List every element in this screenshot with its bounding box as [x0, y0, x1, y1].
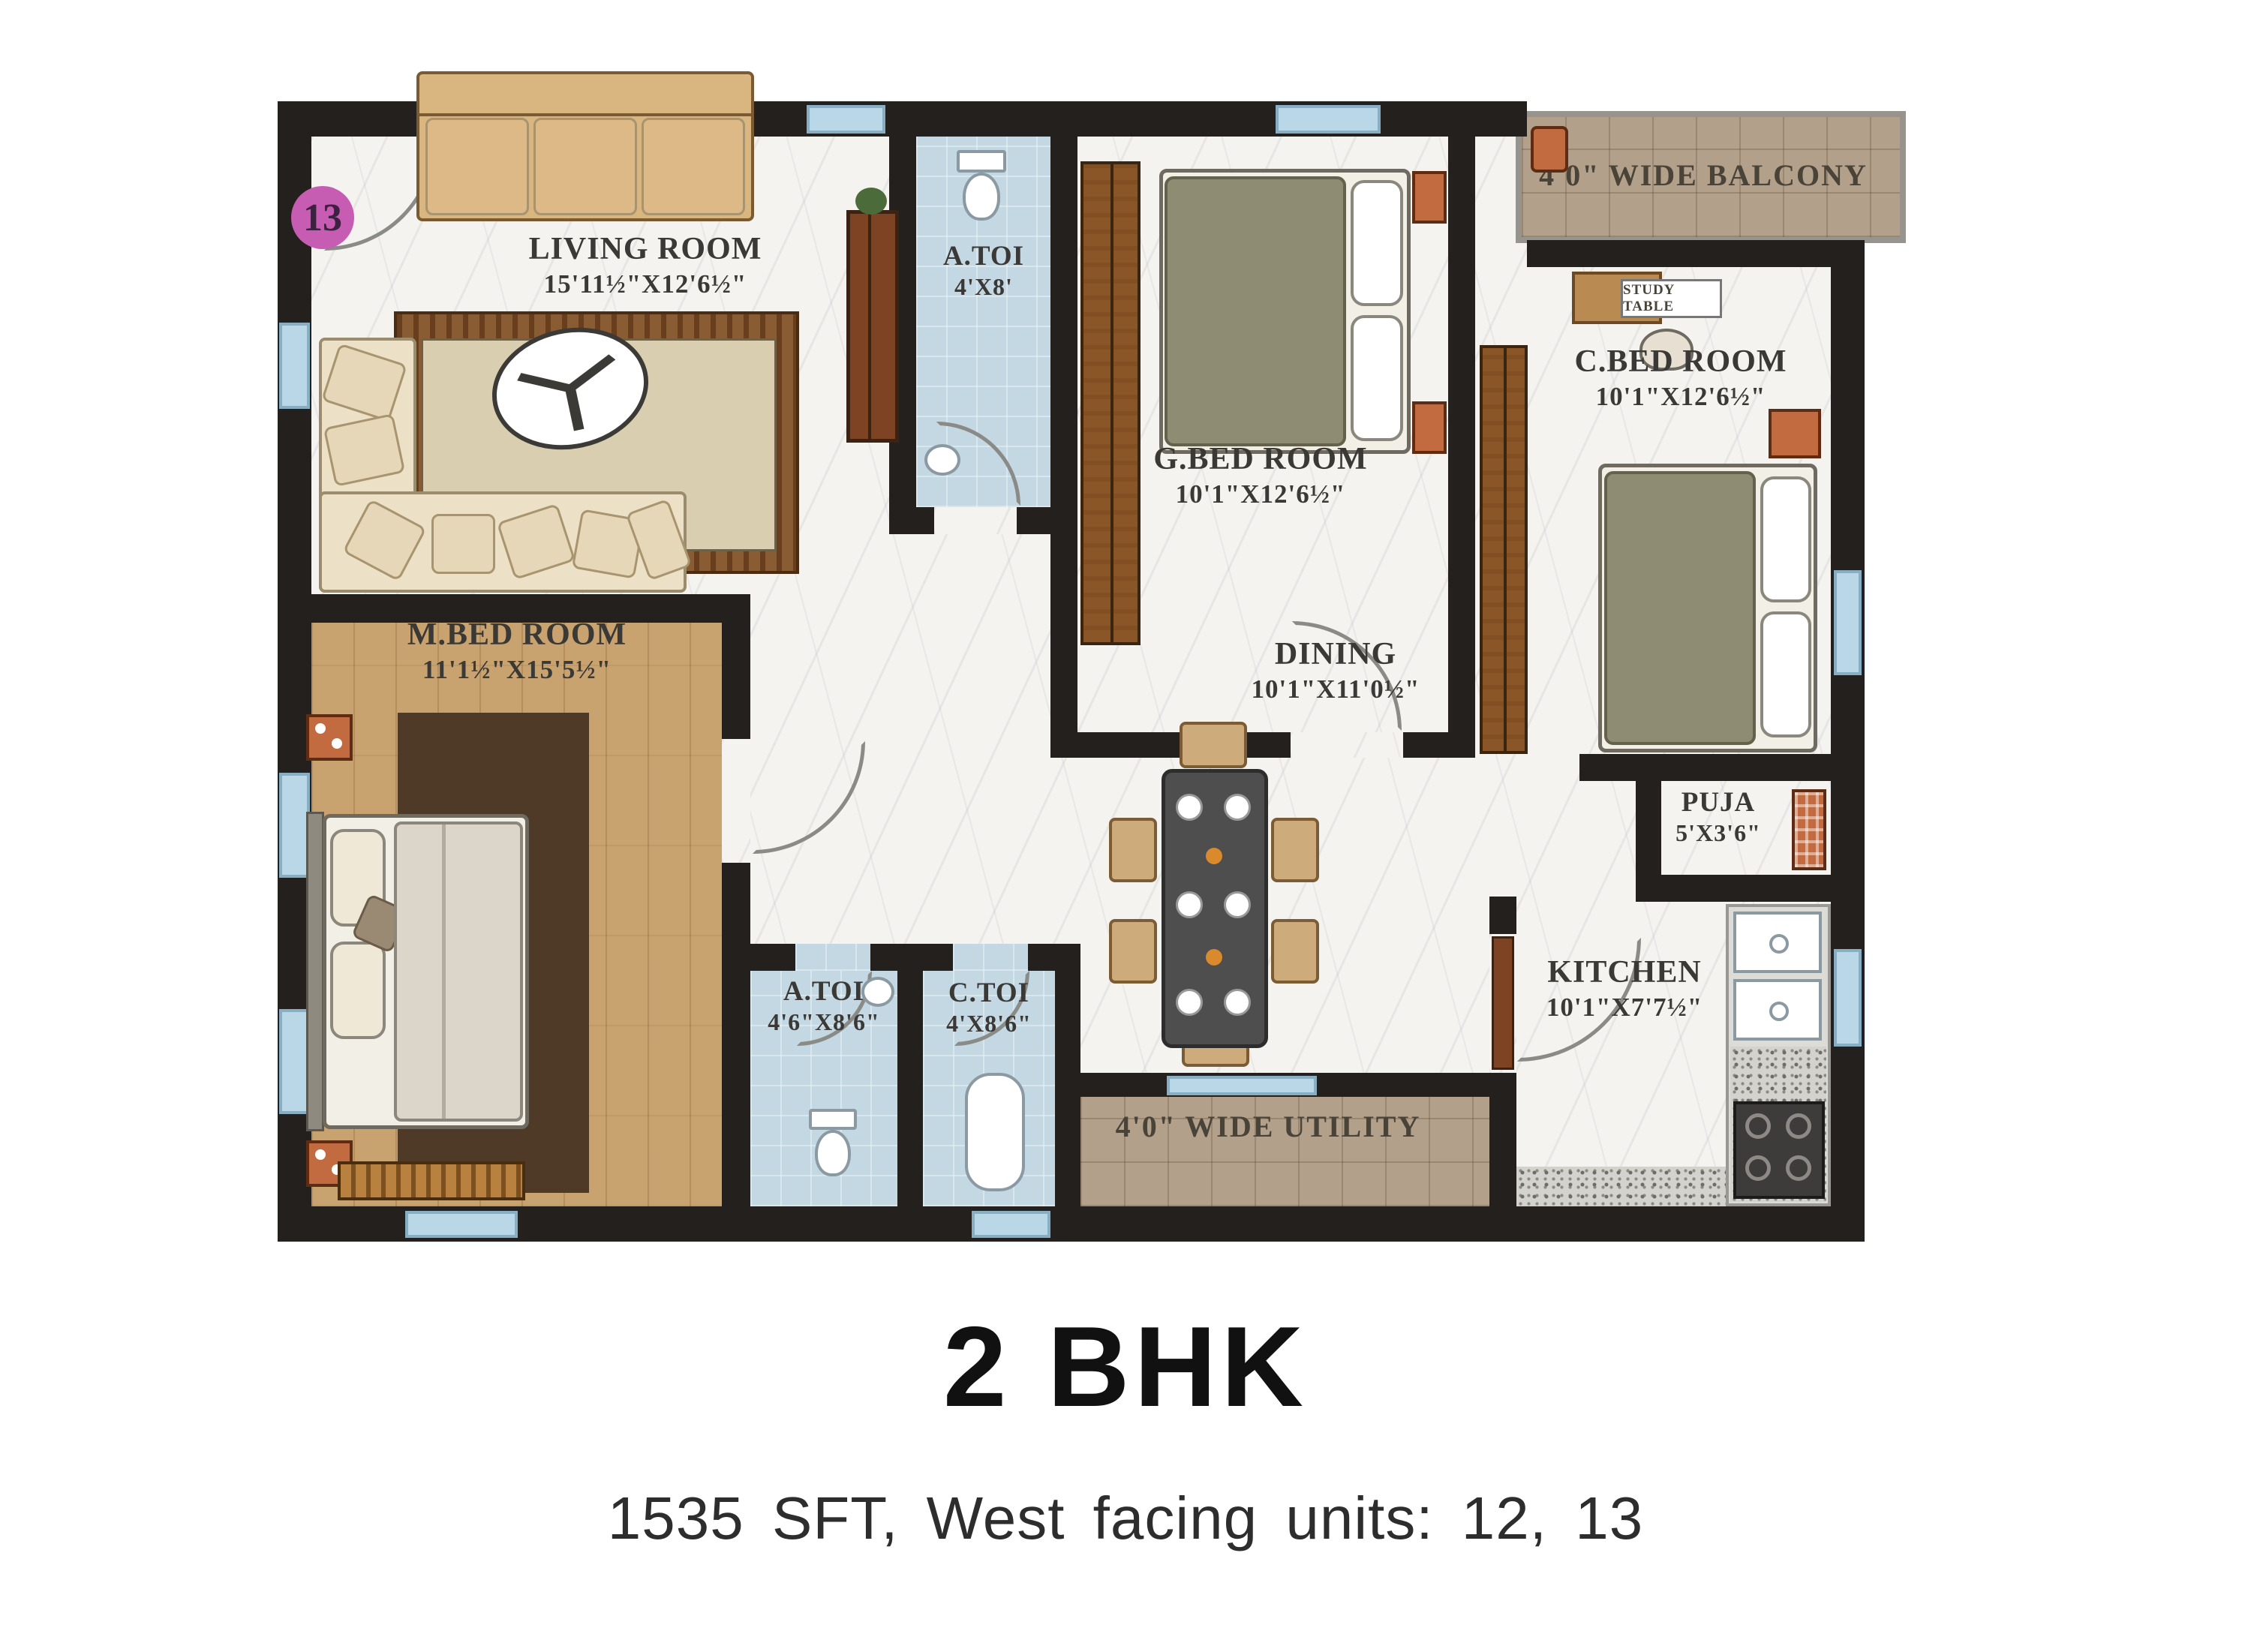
sofa-pillow	[431, 514, 495, 574]
gbed-label: G.BED ROOM 10'1"X12'6½"	[1065, 441, 1456, 509]
cbed-label: C.BED ROOM 10'1"X12'6½"	[1531, 344, 1831, 412]
gbed-pillow	[1351, 315, 1403, 441]
sofa-cushion	[425, 118, 529, 215]
plan-title: 2 BHK	[0, 1302, 2251, 1433]
dining-table	[1162, 769, 1268, 1048]
mbed-duvet	[394, 821, 523, 1122]
sink-icon	[861, 977, 894, 1007]
dining-label: DINING 10'1"X11'0½"	[1186, 636, 1486, 704]
balcony-planter	[1531, 126, 1568, 173]
cbed-nightstand	[1769, 409, 1821, 458]
study-table-label: STUDY TABLE	[1621, 279, 1722, 318]
atoi-top-label: A.TOI 4'X8'	[916, 240, 1051, 301]
gbed-nightstand	[1412, 171, 1447, 224]
plan-subtitle: 1535 SFT, West facing units: 12, 13	[0, 1484, 2251, 1553]
dining-chair	[1109, 818, 1157, 882]
atoi-bottom-door-gap	[795, 944, 870, 971]
window-left-2	[279, 773, 310, 878]
floor-plan-page: 4'0" WIDE BALCONY	[0, 0, 2251, 1652]
wall-mbed-right	[722, 594, 750, 1242]
living-top-sofa	[416, 71, 754, 221]
mbed-label: M.BED ROOM 11'1½"X15'5½"	[311, 617, 723, 685]
wall-gbed-bottom	[1050, 732, 1475, 758]
toilet-icon	[957, 150, 1006, 173]
wall-puja-top	[1579, 754, 1831, 781]
gbed-wardrobe	[1080, 161, 1141, 645]
kitchen-sink-icon	[1733, 912, 1822, 973]
kitchen-sink-icon	[1733, 979, 1822, 1041]
unit-number-badge: 13	[291, 186, 354, 249]
mbed-door-gap	[722, 739, 750, 863]
mbed-bench	[338, 1161, 525, 1200]
hall-cupboard	[846, 210, 899, 443]
window-left-1	[279, 323, 310, 409]
sink-icon	[924, 444, 960, 476]
puja-label: PUJA 5'X3'6"	[1643, 786, 1793, 847]
dining-chair	[1271, 818, 1319, 882]
utility-slider-window	[1167, 1076, 1317, 1095]
mbed-pillow	[330, 942, 386, 1039]
mbed-headboard	[306, 812, 324, 1131]
ctoi-label: C.TOI 4'X8'6"	[923, 977, 1055, 1038]
utility-label: 4'0" WIDE UTILITY	[1080, 1109, 1456, 1144]
mbed-nightstand	[306, 714, 353, 761]
window-top-2	[1276, 105, 1381, 134]
gbed-blanket	[1165, 176, 1346, 446]
wall-toilets-divider	[897, 971, 923, 1206]
balcony-label: 4'0" WIDE BALCONY	[1516, 158, 1891, 193]
window-top-1	[807, 105, 885, 134]
window-bottom-2	[972, 1211, 1050, 1238]
window-right-1	[1834, 570, 1862, 675]
wall-cbed-top	[1527, 240, 1865, 267]
window-bottom-1	[405, 1211, 518, 1238]
floor-plan: 4'0" WIDE BALCONY	[0, 0, 2251, 1275]
wall-ctoi-right	[1055, 944, 1080, 1206]
wall-right	[1831, 240, 1865, 1242]
kitchen-label: KITCHEN 10'1"X7'7½"	[1516, 954, 1733, 1023]
sofa-cushion	[533, 118, 637, 215]
toilet-bowl-icon	[963, 173, 1000, 221]
living-room-label: LIVING ROOM 15'11½"X12'6½"	[420, 231, 870, 299]
dining-chair	[1109, 919, 1157, 984]
cupboard-shelf-line	[868, 214, 871, 439]
window-right-2	[1834, 949, 1862, 1047]
atoi-top-door-gap	[934, 507, 1017, 534]
window-left-3	[279, 1009, 310, 1114]
dining-chair	[1271, 919, 1319, 984]
ctoi-door-gap	[953, 944, 1028, 971]
cbed-blanket	[1604, 471, 1756, 745]
stove-icon	[1733, 1101, 1825, 1199]
bathtub-icon	[965, 1073, 1025, 1191]
cbed-pillow	[1760, 476, 1811, 602]
toilet-icon	[809, 1109, 857, 1130]
plant-icon	[855, 188, 887, 215]
toilet-bowl-icon	[815, 1130, 851, 1176]
kitchen-granite-strip	[1516, 1167, 1730, 1206]
gbed-pillow	[1351, 180, 1403, 306]
puja-door-panel	[1792, 789, 1826, 870]
sofa-backrest	[419, 74, 751, 116]
sofa-cushion	[642, 118, 745, 215]
gbed-door-gap	[1291, 732, 1403, 758]
kitchen-door-leaf	[1492, 936, 1514, 1070]
cbed-pillow	[1760, 611, 1811, 737]
cbed-wardrobe	[1480, 345, 1528, 754]
wall-puja-bottom	[1636, 875, 1831, 902]
dining-chair	[1180, 722, 1247, 768]
